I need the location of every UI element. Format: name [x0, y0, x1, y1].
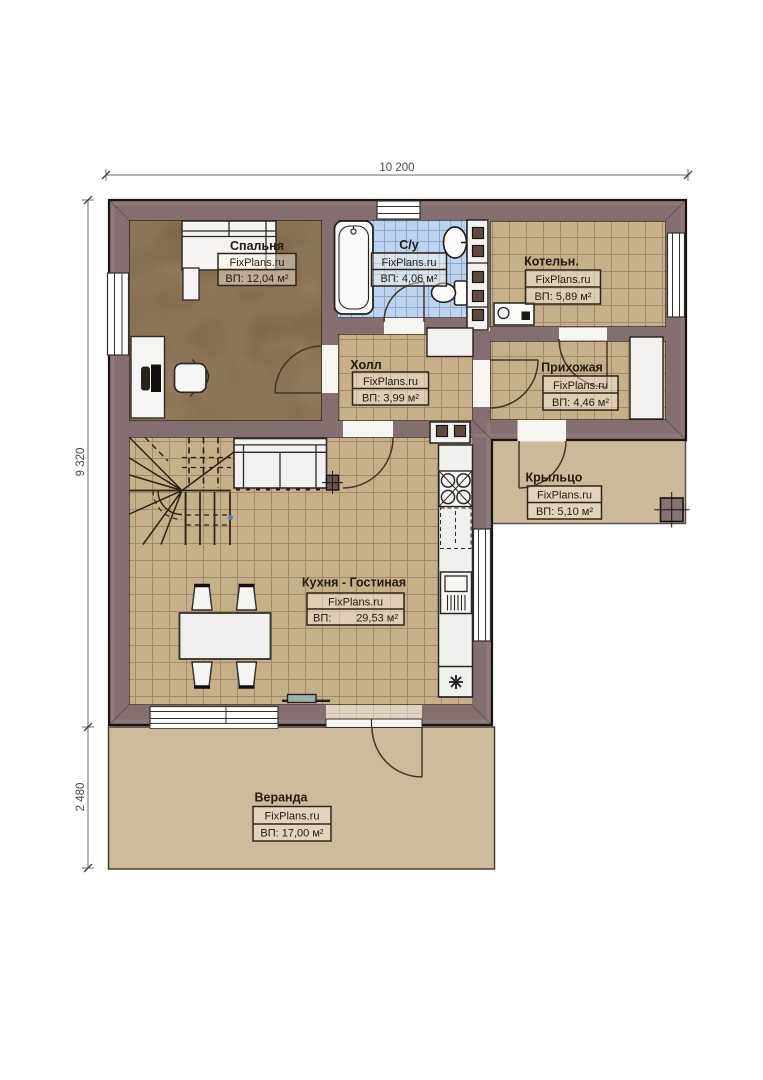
svg-text:FixPlans.ru: FixPlans.ru	[264, 811, 319, 823]
svg-text:FixPlans.ru: FixPlans.ru	[381, 257, 436, 269]
svg-text:С/у: С/у	[399, 238, 419, 252]
svg-text:Веранда: Веранда	[254, 791, 308, 805]
svg-text:Крыльцо: Крыльцо	[526, 471, 583, 485]
svg-text:ВП: 17,00 м²: ВП: 17,00 м²	[260, 828, 324, 840]
svg-text:ВП: 4,46 м²: ВП: 4,46 м²	[552, 397, 609, 409]
svg-text:ВП: 4,06 м²: ВП: 4,06 м²	[380, 273, 437, 285]
svg-text:Спальня: Спальня	[230, 239, 284, 253]
svg-text:2 480: 2 480	[75, 783, 87, 812]
svg-text:9 320: 9 320	[75, 448, 87, 477]
svg-text:FixPlans.ru: FixPlans.ru	[553, 380, 608, 392]
svg-text:FixPlans.ru: FixPlans.ru	[363, 376, 418, 388]
svg-text:ВП:: ВП:	[313, 613, 331, 625]
svg-text:29,53 м²: 29,53 м²	[356, 613, 398, 625]
svg-text:ВП: 5,89 м²: ВП: 5,89 м²	[534, 291, 591, 303]
svg-text:FixPlans.ru: FixPlans.ru	[537, 490, 592, 502]
svg-text:ВП: 3,99 м²: ВП: 3,99 м²	[362, 393, 419, 405]
svg-text:FixPlans.ru: FixPlans.ru	[229, 257, 284, 269]
svg-text:Кухня - Гостиная: Кухня - Гостиная	[302, 576, 406, 590]
svg-text:ВП: 12,04 м²: ВП: 12,04 м²	[225, 273, 289, 285]
svg-text:ВП: 5,10 м²: ВП: 5,10 м²	[536, 506, 593, 518]
svg-text:Прихожая: Прихожая	[541, 361, 603, 375]
svg-text:Холл: Холл	[350, 358, 381, 372]
svg-text:FixPlans.ru: FixPlans.ru	[535, 274, 590, 286]
svg-text:Котельн.: Котельн.	[524, 255, 579, 269]
svg-text:10 200: 10 200	[379, 162, 414, 174]
svg-text:FixPlans.ru: FixPlans.ru	[328, 597, 383, 609]
